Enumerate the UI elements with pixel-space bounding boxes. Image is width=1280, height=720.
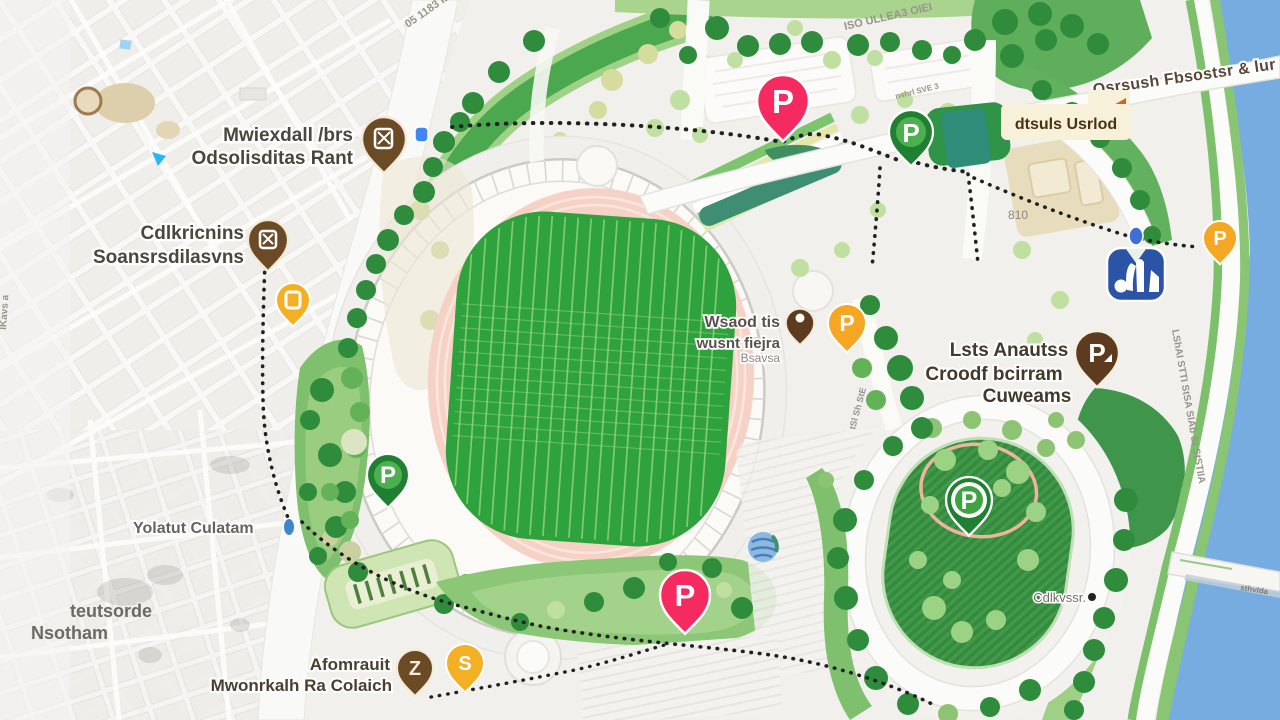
svg-text:S: S (458, 653, 471, 675)
svg-text:Mwonrkalh Ra Colaich: Mwonrkalh Ra Colaich (211, 676, 392, 695)
svg-text:Cdlkricnins: Cdlkricnins (141, 223, 244, 244)
svg-text:Soansrsdilasvns: Soansrsdilasvns (93, 247, 244, 268)
svg-text:P: P (961, 487, 978, 515)
svg-text:P: P (675, 578, 696, 613)
svg-text:P: P (902, 118, 919, 148)
svg-text:Odsolisditas Rant: Odsolisditas Rant (191, 148, 353, 169)
svg-text:Afomrauit: Afomrauit (310, 655, 391, 674)
svg-text:Z: Z (409, 658, 421, 680)
svg-text:Mwiexdall /brs: Mwiexdall /brs (223, 125, 353, 146)
svg-text:Yolatut Culatam: Yolatut Culatam (133, 520, 254, 537)
svg-text:P: P (1213, 228, 1226, 250)
svg-text:Nsotham: Nsotham (31, 623, 108, 643)
svg-text:P: P (380, 462, 396, 489)
svg-text:dtsuls Usrlod: dtsuls Usrlod (1015, 116, 1117, 133)
svg-text:P: P (839, 310, 854, 336)
svg-text:teutsorde: teutsorde (70, 601, 152, 621)
svg-text:Bsavsa: Bsavsa (741, 351, 781, 365)
svg-text:Croodf bcirram: Croodf bcirram (925, 364, 1062, 385)
svg-text:Cuweams: Cuweams (983, 386, 1072, 407)
svg-text:wusnt fiejra: wusnt fiejra (696, 335, 781, 352)
svg-text:Lsts Anautss: Lsts Anautss (950, 340, 1069, 361)
svg-text:Wsaod tis: Wsaod tis (704, 314, 780, 331)
svg-text:810: 810 (1008, 208, 1028, 222)
svg-text:P: P (1088, 338, 1105, 368)
svg-text:P: P (772, 83, 794, 120)
svg-text:Cdlkvssr.: Cdlkvssr. (1033, 590, 1086, 605)
